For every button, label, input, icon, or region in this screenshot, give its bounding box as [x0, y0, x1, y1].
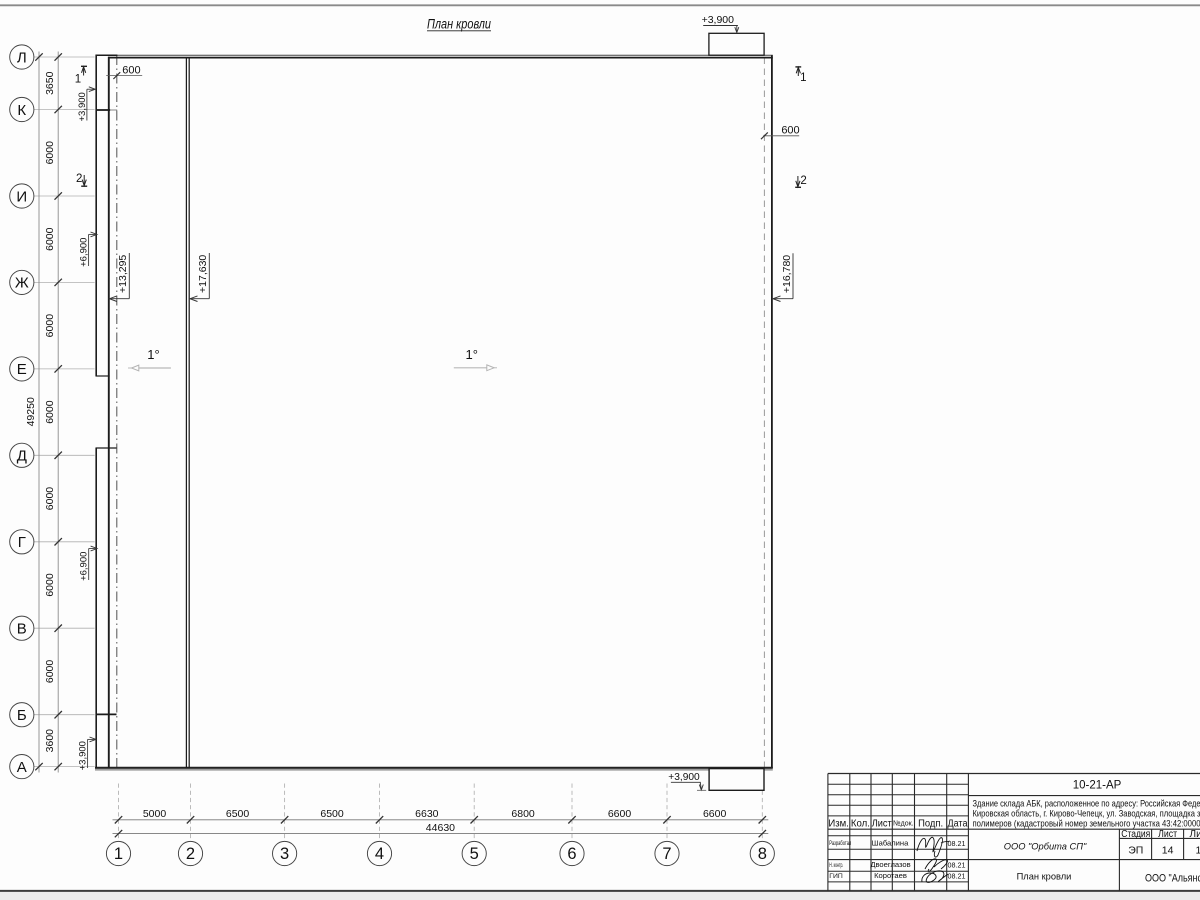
svg-text:7: 7 [662, 845, 671, 863]
svg-text:6000: 6000 [44, 660, 56, 684]
svg-text:Лист: Лист [1158, 829, 1177, 840]
svg-text:Коротаев: Коротаев [874, 871, 907, 880]
svg-text:ООО "Альянс: ООО "Альянс [1145, 872, 1200, 884]
svg-text:полимеров (кадастровый номер з: полимеров (кадастровый номер земельного … [973, 819, 1200, 829]
svg-text:6000: 6000 [44, 314, 56, 338]
svg-text:+6,900: +6,900 [79, 552, 90, 581]
svg-text:6000: 6000 [44, 487, 56, 511]
svg-text:Л: Л [17, 49, 27, 66]
svg-text:А: А [17, 759, 27, 776]
svg-text:6000: 6000 [44, 227, 56, 251]
svg-text:+6,900: +6,900 [79, 238, 90, 267]
svg-text:6000: 6000 [44, 400, 56, 424]
svg-text:+17,630: +17,630 [197, 255, 209, 293]
svg-text:5000: 5000 [143, 808, 167, 820]
svg-text:08.21: 08.21 [948, 839, 966, 848]
svg-text:6000: 6000 [44, 141, 56, 165]
svg-text:План кровли: План кровли [1017, 872, 1072, 882]
svg-text:Дата: Дата [948, 818, 968, 829]
svg-text:5: 5 [470, 845, 479, 863]
svg-text:Двоеглазов: Двоеглазов [870, 860, 910, 869]
svg-text:Б: Б [17, 707, 27, 724]
svg-text:8: 8 [758, 845, 767, 863]
svg-text:6000: 6000 [44, 573, 56, 597]
svg-text:Лист: Лист [1190, 829, 1200, 840]
svg-text:Изм.: Изм. [828, 818, 849, 829]
svg-text:+16,780: +16,780 [781, 255, 793, 293]
svg-text:4: 4 [375, 845, 384, 863]
svg-text:600: 600 [122, 65, 140, 77]
svg-text:Н. контр.: Н. контр. [829, 862, 843, 869]
svg-text:Г: Г [18, 534, 26, 551]
svg-text:6630: 6630 [415, 808, 439, 820]
svg-text:+3,900: +3,900 [702, 14, 735, 26]
svg-text:1°: 1° [147, 347, 159, 362]
svg-text:И: И [16, 188, 27, 205]
svg-text:Здание склада АБК, расположенн: Здание склада АБК, расположенное по адре… [973, 799, 1200, 809]
svg-text:Разработал: Разработал [829, 839, 851, 847]
svg-text:Шабалина: Шабалина [872, 839, 909, 848]
svg-text:10-21-АР: 10-21-АР [1073, 779, 1122, 791]
svg-text:2: 2 [76, 173, 82, 185]
svg-text:600: 600 [781, 125, 799, 137]
svg-text:14: 14 [1162, 845, 1174, 857]
svg-text:+13,295: +13,295 [117, 255, 129, 293]
svg-text:ООО "Орбита СП": ООО "Орбита СП" [1004, 841, 1087, 851]
svg-text:ГИП: ГИП [829, 873, 843, 880]
svg-text:6500: 6500 [226, 808, 250, 820]
svg-text:План кровли: План кровли [427, 16, 491, 31]
svg-text:1: 1 [114, 845, 123, 863]
svg-text:ЭП: ЭП [1128, 845, 1143, 857]
svg-text:6: 6 [567, 845, 576, 863]
svg-text:3: 3 [280, 845, 289, 863]
svg-text:К: К [17, 102, 26, 119]
svg-text:1: 1 [75, 74, 81, 86]
svg-text:3600: 3600 [44, 729, 56, 753]
svg-text:2: 2 [186, 845, 195, 863]
svg-text:3650: 3650 [44, 71, 56, 95]
svg-text:2: 2 [800, 175, 806, 187]
svg-text:Кировская область, г. Кирово-Ч: Кировская область, г. Кирово-Чепецк, ул.… [973, 809, 1200, 819]
svg-text:Кол.: Кол. [851, 818, 870, 829]
svg-text:6800: 6800 [511, 808, 535, 820]
svg-text:+3,900: +3,900 [77, 92, 88, 121]
svg-text:Е: Е [17, 361, 27, 378]
svg-text:№док.: №док. [893, 818, 914, 827]
svg-text:08.21: 08.21 [948, 872, 966, 881]
svg-text:15: 15 [1196, 845, 1200, 857]
svg-text:Лист: Лист [872, 818, 892, 829]
svg-text:+3,900: +3,900 [668, 772, 700, 783]
svg-text:1°: 1° [465, 347, 477, 362]
svg-text:08.21: 08.21 [948, 860, 966, 869]
svg-text:Д: Д [17, 448, 27, 465]
svg-text:6500: 6500 [320, 808, 344, 820]
svg-text:6600: 6600 [608, 808, 632, 820]
svg-text:6600: 6600 [703, 808, 727, 820]
svg-text:44630: 44630 [426, 822, 455, 834]
svg-text:49250: 49250 [25, 397, 37, 426]
svg-text:Подп.: Подп. [918, 818, 943, 829]
svg-text:В: В [17, 621, 27, 638]
svg-text:+3,900: +3,900 [78, 741, 89, 770]
svg-text:Ж: Ж [15, 275, 29, 292]
svg-text:1: 1 [800, 72, 806, 84]
svg-text:Стадия: Стадия [1121, 829, 1150, 840]
